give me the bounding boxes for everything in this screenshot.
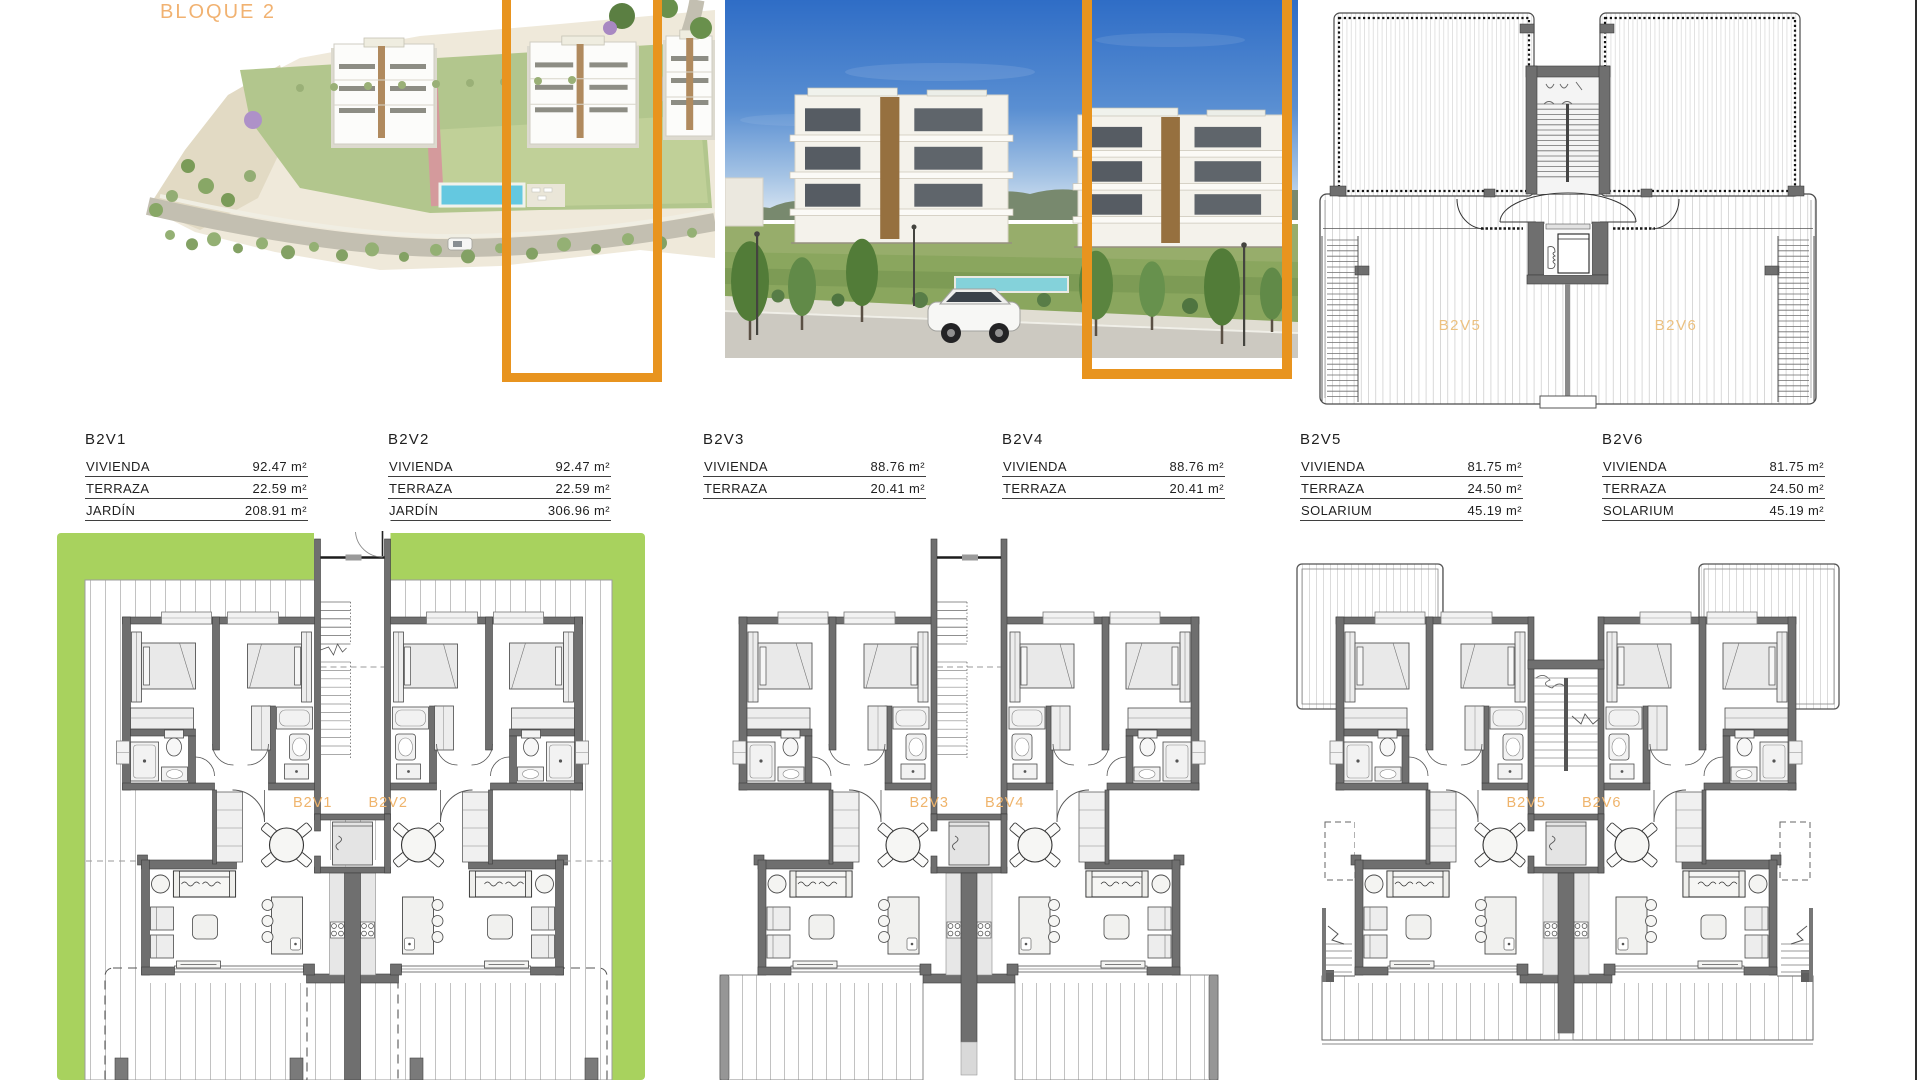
- svg-text:B2V3: B2V3: [910, 795, 949, 811]
- svg-text:B2V5: B2V5: [1439, 317, 1482, 334]
- svg-text:B2V6: B2V6: [1655, 317, 1698, 334]
- svg-text:B2V5: B2V5: [1507, 795, 1546, 811]
- svg-text:B2V2: B2V2: [369, 795, 408, 811]
- svg-text:B2V1: B2V1: [293, 795, 332, 811]
- svg-text:B2V6: B2V6: [1582, 795, 1621, 811]
- svg-text:B2V4: B2V4: [985, 795, 1024, 811]
